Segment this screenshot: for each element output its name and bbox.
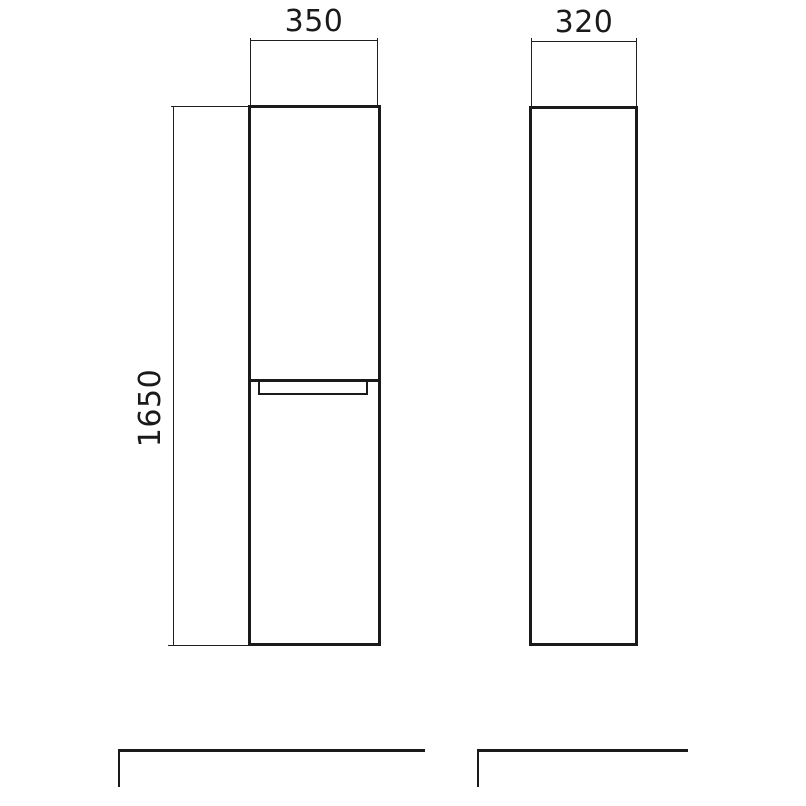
- width-dimension-label: 350: [250, 5, 378, 39]
- depth-dimension-line: [531, 41, 637, 42]
- front-view-outline: [248, 105, 381, 646]
- depth-dimension-extension-left: [531, 38, 532, 106]
- height-dimension-extension-top: [171, 106, 248, 107]
- width-dimension-extension-left: [250, 38, 251, 105]
- depth-dimension-label: 320: [531, 6, 637, 40]
- floor-line-left: [118, 749, 425, 752]
- floor-line-right: [477, 749, 688, 752]
- floor-line-right-end-tick: [477, 749, 479, 787]
- side-view-outline: [529, 106, 638, 646]
- height-dimension-line: [173, 106, 174, 646]
- height-dimension-extension-bottom: [168, 645, 248, 646]
- floor-line-left-end-tick: [118, 749, 120, 787]
- depth-dimension-extension-right: [636, 38, 637, 106]
- width-dimension-extension-right: [377, 38, 378, 105]
- front-view-handle-recess: [258, 382, 368, 395]
- height-dimension-label: 1650: [134, 338, 168, 478]
- width-dimension-line: [250, 40, 378, 41]
- technical-drawing-canvas: 350 320 1650: [0, 0, 806, 806]
